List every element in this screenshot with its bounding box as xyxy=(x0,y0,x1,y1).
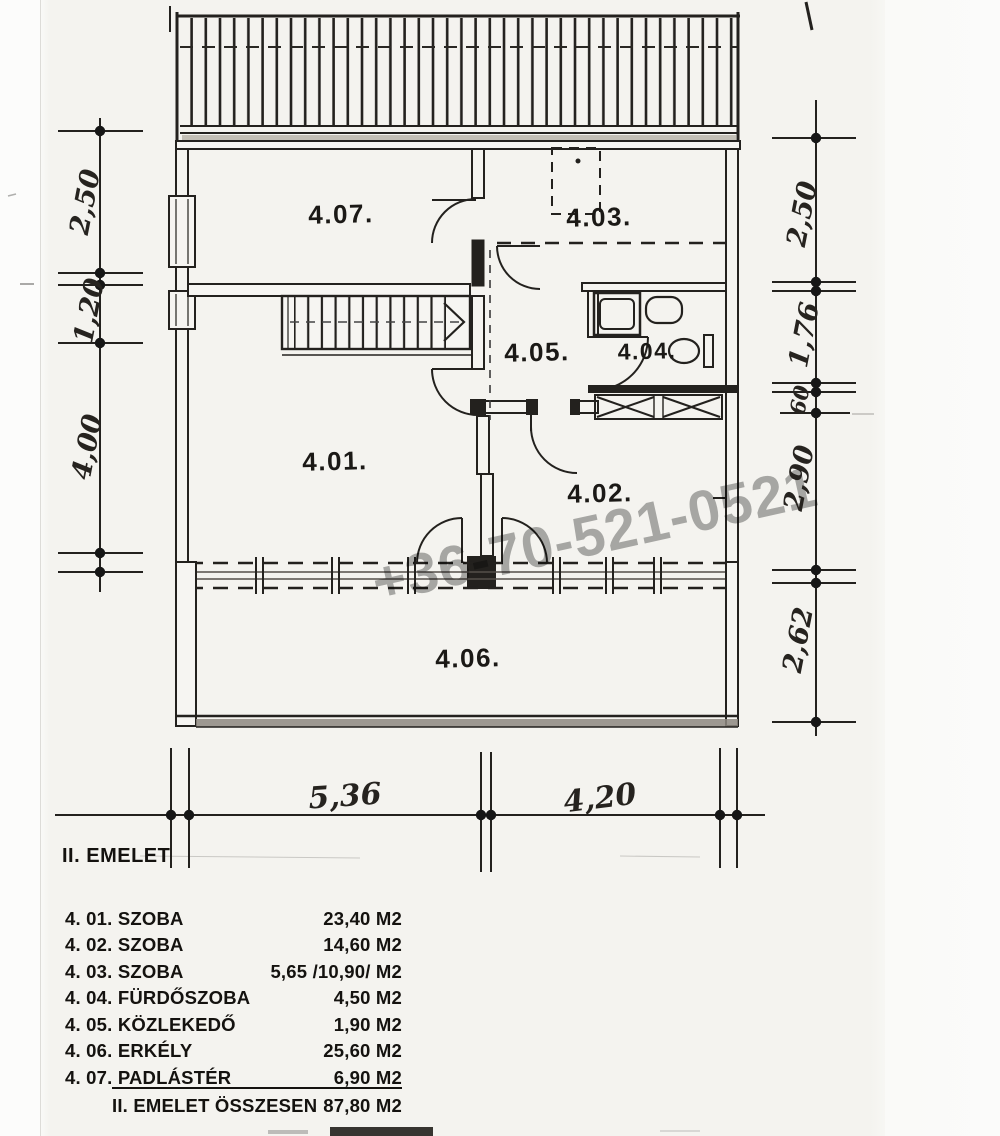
door-arc-402 xyxy=(531,427,577,473)
roof-hatch-band xyxy=(170,6,740,141)
legend-total-area: 87,80 M2 xyxy=(323,1094,402,1118)
dim-bottom-536: 5,36 xyxy=(302,777,388,817)
room-label-4-02: 4.02. xyxy=(545,477,656,511)
legend-total-label: II. EMELET ÖSSZESEN xyxy=(112,1094,317,1118)
legend-label: 4. 05. KÖZLEKEDŐ xyxy=(65,1013,236,1037)
legend-row-4-04: 4. 04. FÜRDŐSZOBA 4,50 M2 xyxy=(65,986,402,1010)
door-arc-407 xyxy=(432,199,476,243)
legend-label: 4. 02. SZOBA xyxy=(65,933,184,957)
room-label-4-06: 4.06. xyxy=(413,642,524,676)
legend-label: 4. 06. ERKÉLY xyxy=(65,1039,192,1063)
room-label-4-04: 4.04. xyxy=(592,337,703,367)
legend-row-4-02: 4. 02. SZOBA 14,60 M2 xyxy=(65,933,402,957)
legend-area: 4,50 M2 xyxy=(334,986,402,1010)
room-label-4-05: 4.05. xyxy=(482,336,593,370)
sink-icon xyxy=(646,297,682,323)
legend-label: 4. 03. SZOBA xyxy=(65,960,184,984)
legend-row-4-05: 4. 05. KÖZLEKEDŐ 1,90 M2 xyxy=(65,1013,402,1037)
stairs xyxy=(188,284,472,355)
crossed-cabinet-element xyxy=(595,395,722,419)
legend-area: 25,60 M2 xyxy=(323,1039,402,1063)
legend-row-4-06: 4. 06. ERKÉLY 25,60 M2 xyxy=(65,1039,402,1063)
legend-total-divider xyxy=(112,1087,402,1089)
room-label-4-07: 4.07. xyxy=(286,198,397,232)
legend-area: 1,90 M2 xyxy=(334,1013,402,1037)
legend-label: 4. 01. SZOBA xyxy=(65,907,184,931)
legend-row-4-03: 4. 03. SZOBA 5,65 /10,90/ M2 xyxy=(65,960,402,984)
legend-area: 14,60 M2 xyxy=(323,933,402,957)
legend-total-row: II. EMELET ÖSSZESEN 87,80 M2 xyxy=(112,1094,402,1118)
legend-area: 23,40 M2 xyxy=(323,907,402,931)
legend-row-4-01: 4. 01. SZOBA 23,40 M2 xyxy=(65,907,402,931)
room-label-4-01: 4.01. xyxy=(280,445,391,479)
room-label-4-03: 4.03. xyxy=(544,201,655,235)
floor-title: II. EMELET xyxy=(62,845,170,868)
legend-label: 4. 04. FÜRDŐSZOBA xyxy=(65,986,250,1010)
door-arc-403 xyxy=(497,246,540,289)
legend-area: 5,65 /10,90/ M2 xyxy=(270,960,402,984)
